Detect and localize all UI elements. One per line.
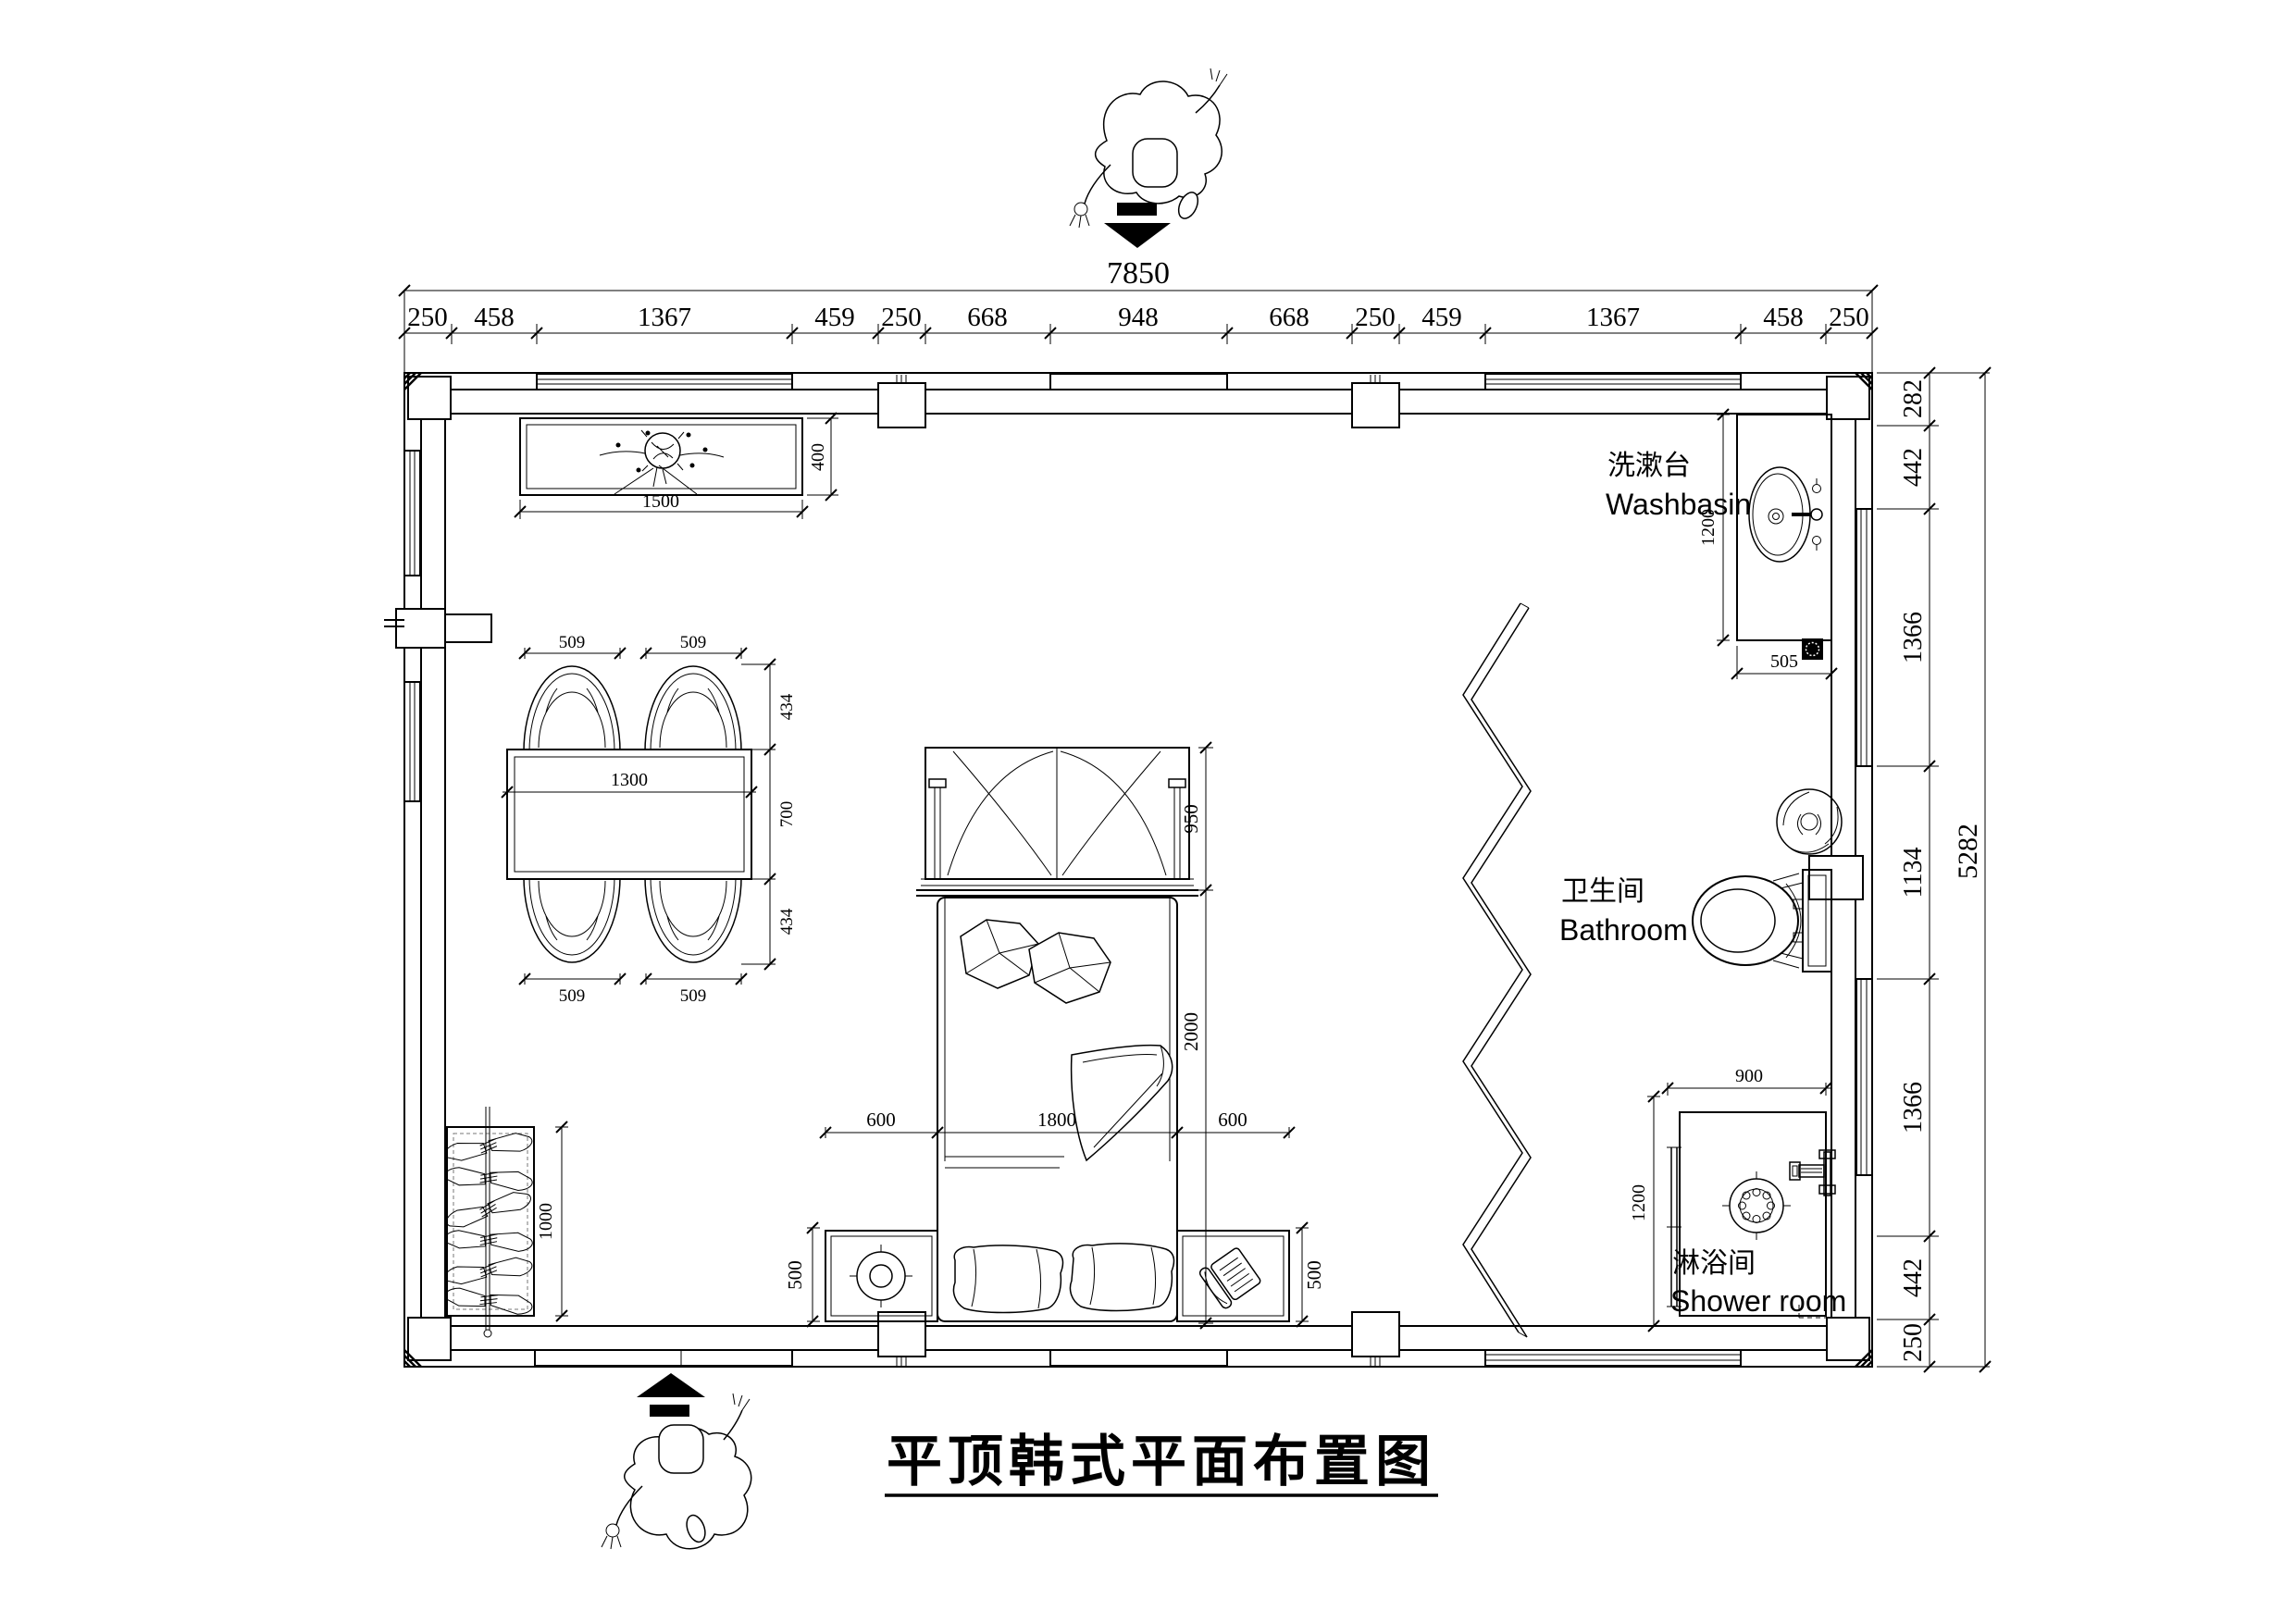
dim-total-width: 7850 — [1107, 256, 1170, 291]
dim-cabinet-depth: 400 — [808, 443, 828, 471]
window-right-lower — [1856, 979, 1872, 1175]
arrow-head-down — [1104, 223, 1171, 248]
dim-cabinet-width: 1500 — [642, 491, 679, 512]
person-head — [659, 1425, 703, 1473]
post-corner-bottom-left — [408, 1318, 451, 1360]
dim-total-height: 5282 — [1953, 824, 1983, 879]
dim-top-2: 1367 — [638, 303, 691, 332]
title-text: 平顶韩式平面布置图 — [887, 1431, 1436, 1493]
post-corner-top-right — [1827, 377, 1869, 419]
entry-arrow-top — [1104, 203, 1171, 248]
dim-top-11: 458 — [1763, 303, 1804, 332]
window-top-right — [1485, 374, 1741, 390]
dim-right-3: 1134 — [1899, 848, 1928, 898]
label-bathroom-en: Bathroom — [1559, 913, 1688, 947]
arrow-bar — [1117, 203, 1157, 216]
post-bottom-mid-right — [1352, 1312, 1399, 1357]
dim-right-4: 1366 — [1899, 1082, 1928, 1134]
dim-bed-canopy: 950 — [1180, 804, 1202, 834]
post-corner-top-left — [408, 377, 451, 419]
floor-plan-page: 7850 250 458 1367 459 250 668 948 668 25… — [0, 0, 2296, 1623]
opening-top-middle — [1050, 374, 1227, 390]
foot-pillow-right — [1070, 1244, 1173, 1311]
post-corner-bottom-right — [1827, 1318, 1869, 1360]
dim-right-5: 442 — [1899, 1258, 1928, 1297]
dim-rack-height: 1000 — [536, 1203, 556, 1240]
dim-bed-width: 1800 — [1037, 1109, 1076, 1131]
post-top-mid-left — [878, 383, 925, 427]
dim-table-width: 1300 — [611, 770, 648, 790]
opening-bottom-middle — [1050, 1350, 1227, 1366]
arrow-bar — [650, 1405, 689, 1417]
dim-shower-depth: 1200 — [1629, 1184, 1649, 1221]
dim-right-2: 1366 — [1899, 612, 1928, 663]
label-shower-zh: 淋浴间 — [1672, 1248, 1756, 1279]
label-washbasin-zh: 洗漱台 — [1607, 451, 1691, 481]
dim-top-8: 250 — [1355, 303, 1396, 332]
dim-nightstand-right: 500 — [1303, 1260, 1325, 1290]
dim-top-12: 250 — [1829, 303, 1869, 332]
dim-right-1: 442 — [1899, 448, 1928, 487]
dim-right-6: 250 — [1899, 1323, 1928, 1362]
dim-chair-t1: 509 — [559, 633, 586, 652]
label-shower-en: Shower room — [1670, 1284, 1846, 1318]
dim-top-10: 1367 — [1586, 303, 1640, 332]
dim-shower-width: 900 — [1735, 1066, 1763, 1086]
dim-basin-width: 505 — [1770, 651, 1798, 672]
person-figure-bottom — [602, 1394, 751, 1549]
drawing-title: 平顶韩式平面布置图 — [885, 1431, 1438, 1495]
window-left-lower — [404, 682, 420, 801]
dim-chair-b1: 509 — [559, 986, 586, 1006]
post-bottom-mid-left — [878, 1312, 925, 1357]
floor-drain-square — [1802, 638, 1823, 660]
dim-top-1: 458 — [474, 303, 515, 332]
dim-top-0: 250 — [407, 303, 448, 332]
dim-right-0: 282 — [1899, 379, 1928, 418]
arrow-head-up — [637, 1373, 705, 1397]
dim-chair-t2: 509 — [680, 633, 707, 652]
post-left-mid-inner — [445, 614, 491, 642]
foot-pillow-left — [953, 1245, 1062, 1313]
dim-top-4: 250 — [881, 303, 922, 332]
right-dimension-total: 5282 — [1953, 367, 1991, 1372]
dim-bed-right: 600 — [1218, 1109, 1247, 1131]
dim-side-top: 434 — [777, 693, 797, 720]
entry-arrow-bottom — [637, 1373, 705, 1417]
label-washbasin-en: Washbasin — [1606, 488, 1751, 521]
dim-side-bottom: 434 — [777, 908, 797, 935]
person-head — [1133, 139, 1177, 187]
dim-top-6: 948 — [1118, 303, 1159, 332]
dim-top-9: 459 — [1421, 303, 1462, 332]
dim-top-3: 459 — [814, 303, 855, 332]
window-top-left — [537, 374, 792, 390]
dim-side-mid: 700 — [777, 801, 797, 828]
floor-plan-svg: 7850 250 458 1367 459 250 668 948 668 25… — [0, 0, 2296, 1623]
window-right-upper — [1856, 509, 1872, 766]
post-left-mid — [396, 609, 445, 648]
label-bathroom-zh: 卫生间 — [1561, 876, 1644, 907]
dining-table — [507, 750, 751, 879]
top-dimension-segments: 250 458 1367 459 250 668 948 668 250 459… — [399, 303, 1878, 344]
window-left-upper — [404, 451, 420, 576]
dim-nightstand-left: 500 — [784, 1260, 806, 1290]
post-right-mid — [1809, 856, 1863, 899]
window-bottom-right — [1485, 1350, 1741, 1366]
dim-top-7: 668 — [1269, 303, 1309, 332]
post-top-mid-right — [1352, 383, 1399, 427]
dim-bed-left: 600 — [866, 1109, 896, 1131]
entry-door-threshold — [535, 1350, 792, 1366]
dim-bed-length: 2000 — [1180, 1012, 1202, 1051]
dim-top-5: 668 — [967, 303, 1008, 332]
dim-chair-b2: 509 — [680, 986, 707, 1006]
